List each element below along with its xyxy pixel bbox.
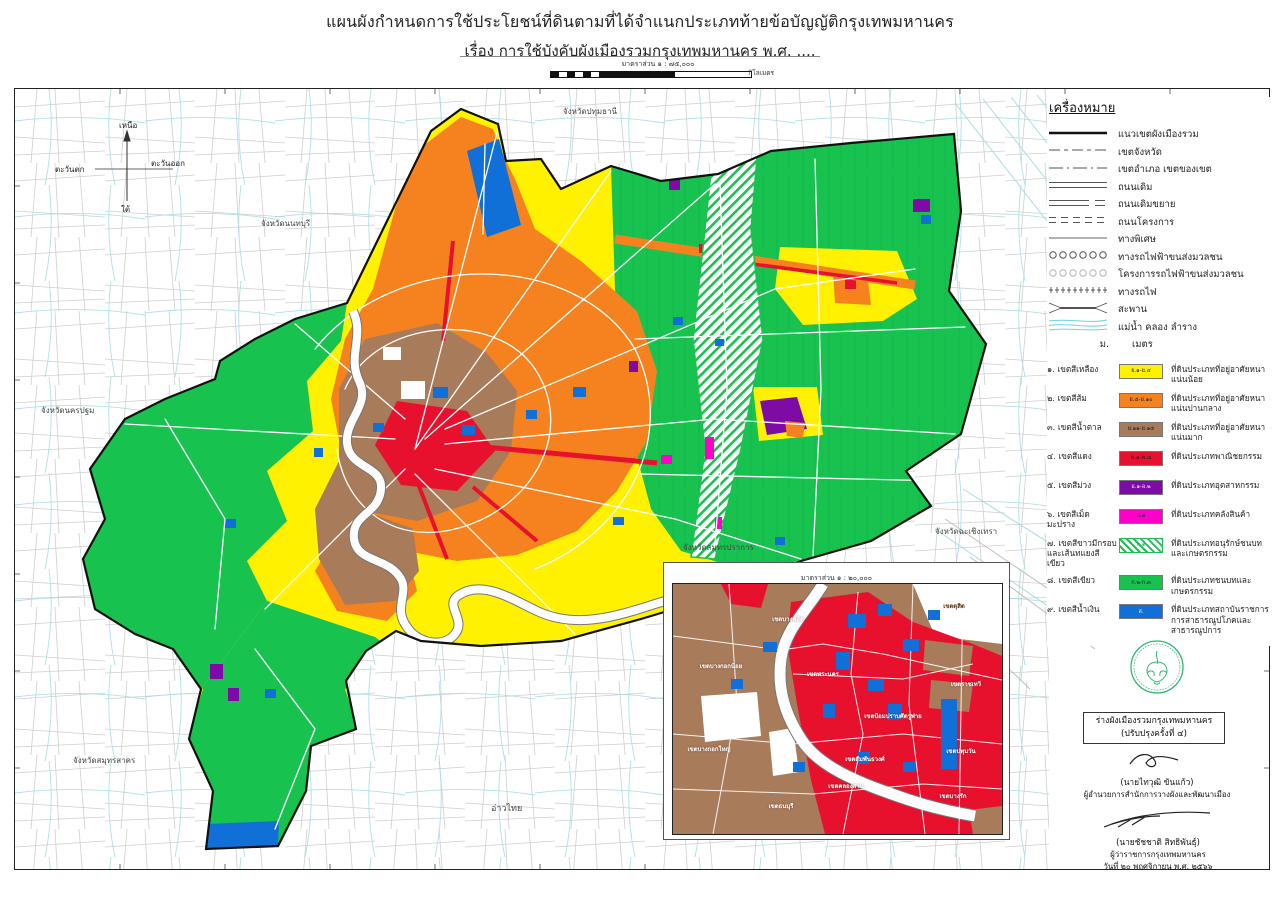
zone-row-red: ๔. เขตสีแดง พ.๑-พ.๘ ที่ดินประเภทพาณิชยกร… — [1047, 451, 1275, 473]
inset-district: เขตบางกอกใหญ่ — [687, 744, 730, 754]
inset-district: เขตพระนคร — [807, 669, 839, 679]
purple-zone-swatch: อ.๑-อ.๒ — [1119, 480, 1163, 495]
magenta-zone-swatch: อ.๓ — [1119, 509, 1163, 524]
inset-district: เขตบางรัก — [939, 791, 966, 801]
inset-district: เขตสัมพันธวงศ์ — [845, 754, 885, 764]
inner-city-inset-map: มาตราส่วน ๑ : ๒๐,๐๐๐ — [664, 563, 1009, 839]
inset-district: เขตบางพลัด — [772, 614, 804, 624]
governor-signature: (นายชัชชาติ สิทธิพันธุ์) ผู้ว่าราชการกรุ… — [1053, 807, 1263, 873]
signature-scribble-icon — [1122, 749, 1192, 771]
legend-row-planned-road: ถนนโครงการ — [1047, 214, 1275, 232]
legend-row-waterway: แม่น้ำ คลอง ลำราง — [1047, 319, 1275, 337]
legend-row-province-boundary: เขตจังหวัด — [1047, 144, 1275, 162]
legend-title: เครื่องหมาย — [1049, 97, 1275, 118]
bma-seal-icon — [1129, 639, 1185, 695]
hatched-zone-swatch: ก.๑ — [1119, 538, 1163, 553]
legend-row-meter: ม. เมตร — [1047, 336, 1275, 354]
approval-block: ร่างผังเมืองรวมกรุงเทพมหานคร (ปรับปรุงคร… — [1045, 631, 1280, 869]
label-samut-sakhon: จังหวัดสมุทรสาคร — [73, 754, 135, 767]
inset-district: เขตป้อมปราบศัตรูพ่าย — [864, 711, 921, 721]
zone-row-green-hatch: ๗. เขตสีขาวมีกรอบและเส้นทแยงสีเขียว ก.๑ … — [1047, 538, 1275, 569]
label-nonthaburi: จังหวัดนนทบุรี — [261, 217, 310, 230]
legend-row-plan-boundary: แนวเขตผังเมืองรวม — [1047, 126, 1275, 144]
orange-zone-swatch: ย.๕-ย.๑๐ — [1119, 393, 1163, 408]
plan-revision-box: ร่างผังเมืองรวมกรุงเทพมหานคร (ปรับปรุงคร… — [1083, 712, 1225, 744]
main-scale-unit: กิโลเมตร — [748, 68, 774, 78]
scale-bar-graphic — [550, 71, 752, 78]
green-zone-swatch: ก.๒-ก.๓ — [1119, 575, 1163, 590]
inset-map-canvas: เขตบางพลัด เขตดุสิต เขตบางกอกน้อย เขตพระ… — [672, 583, 1003, 835]
main-scale-label: มาตราส่วน ๑ : ๗๕,๐๐๐ — [548, 59, 768, 70]
legend-row-expressway: ทางพิเศษ — [1047, 231, 1275, 249]
legend-row-bridge: สะพาน — [1047, 301, 1275, 319]
inset-district: เขตดุสิต — [943, 601, 965, 611]
legend-row-mass-transit-project: โครงการรถไฟฟ้าขนส่งมวลชน — [1047, 266, 1275, 284]
map-frame: เหนือ ตะวันตก ตะวันออก ใต้ จังหวัดปทุมธา… — [14, 88, 1270, 870]
legend-row-mass-transit: ทางรถไฟฟ้าขนส่งมวลชน — [1047, 249, 1275, 267]
zone-row-brown: ๓. เขตสีน้ำตาล ย.๑๑-ย.๑๕ ที่ดินประเภทที่… — [1047, 422, 1275, 444]
title-line-1: แผนผังกำหนดการใช้ประโยชน์ที่ดินตามที่ได้… — [0, 10, 1280, 35]
legend-row-district-boundary: เขตอำเภอ เขตของเขต — [1047, 161, 1275, 179]
inset-district: เขตราชเทวี — [951, 679, 981, 689]
main-scale-bar: มาตราส่วน ๑ : ๗๕,๐๐๐ กิโลเมตร — [548, 59, 768, 78]
legend-row-existing-road: ถนนเดิม — [1047, 179, 1275, 197]
zone-row-purple: ๕. เขตสีม่วง อ.๑-อ.๒ ที่ดินประเภทอุตสาหก… — [1047, 480, 1275, 502]
yellow-zone-swatch: ย.๑-ย.๔ — [1119, 364, 1163, 379]
zone-row-green: ๘. เขตสีเขียว ก.๒-ก.๓ ที่ดินประเภทชนบทแล… — [1047, 575, 1275, 597]
zone-row-yellow: ๑. เขตสีเหลือง ย.๑-ย.๔ ที่ดินประเภทที่อย… — [1047, 364, 1275, 386]
label-chachoengsao: จังหวัดฉะเชิงเทรา — [935, 525, 997, 538]
legend-row-railway: ทางรถไฟ — [1047, 284, 1275, 302]
zone-row-magenta: ๖. เขตสีเม็ดมะปราง อ.๓ ที่ดินประเภทคลังส… — [1047, 509, 1275, 531]
compass-arrow-icon — [55, 119, 205, 249]
label-nakhon-pathom: จังหวัดนครปฐม — [41, 404, 94, 417]
director-signature: (นายไทวุฒิ ขันแก้ว) ผู้อำนวยการสำนักการว… — [1067, 749, 1247, 801]
inset-district: เขตปทุมวัน — [946, 746, 975, 756]
label-gulf-of-thailand: อ่าวไทย — [491, 801, 522, 815]
inset-district: เขตคลองสาน — [828, 781, 863, 791]
inset-district: เขตบางกอกน้อย — [700, 661, 742, 671]
legend-row-widened-road: ถนนเดิมขยาย — [1047, 196, 1275, 214]
brown-zone-swatch: ย.๑๑-ย.๑๕ — [1119, 422, 1163, 437]
blue-zone-swatch: ส. — [1119, 604, 1163, 619]
red-zone-swatch: พ.๑-พ.๘ — [1119, 451, 1163, 466]
zone-legend: ๑. เขตสีเหลือง ย.๑-ย.๔ ที่ดินประเภทที่อย… — [1047, 364, 1275, 636]
meter-abbrev: ม. — [1047, 337, 1123, 352]
zone-row-orange: ๒. เขตสีส้ม ย.๕-ย.๑๐ ที่ดินประเภทที่อยู่… — [1047, 393, 1275, 415]
compass-rose: เหนือ ตะวันตก ตะวันออก ใต้ — [55, 119, 205, 249]
label-pathum-thani: จังหวัดปทุมธานี — [563, 105, 617, 118]
label-samut-prakan: จังหวัดสมุทรปราการ — [683, 541, 754, 554]
signature-scribble-icon — [1098, 807, 1218, 831]
title-divider — [460, 56, 820, 57]
legend: เครื่องหมาย แนวเขตผังเมืองรวม เขตจังหวัด… — [1047, 97, 1275, 646]
waterway-icon — [1047, 317, 1109, 337]
inset-district: เขตธนบุรี — [769, 801, 794, 811]
